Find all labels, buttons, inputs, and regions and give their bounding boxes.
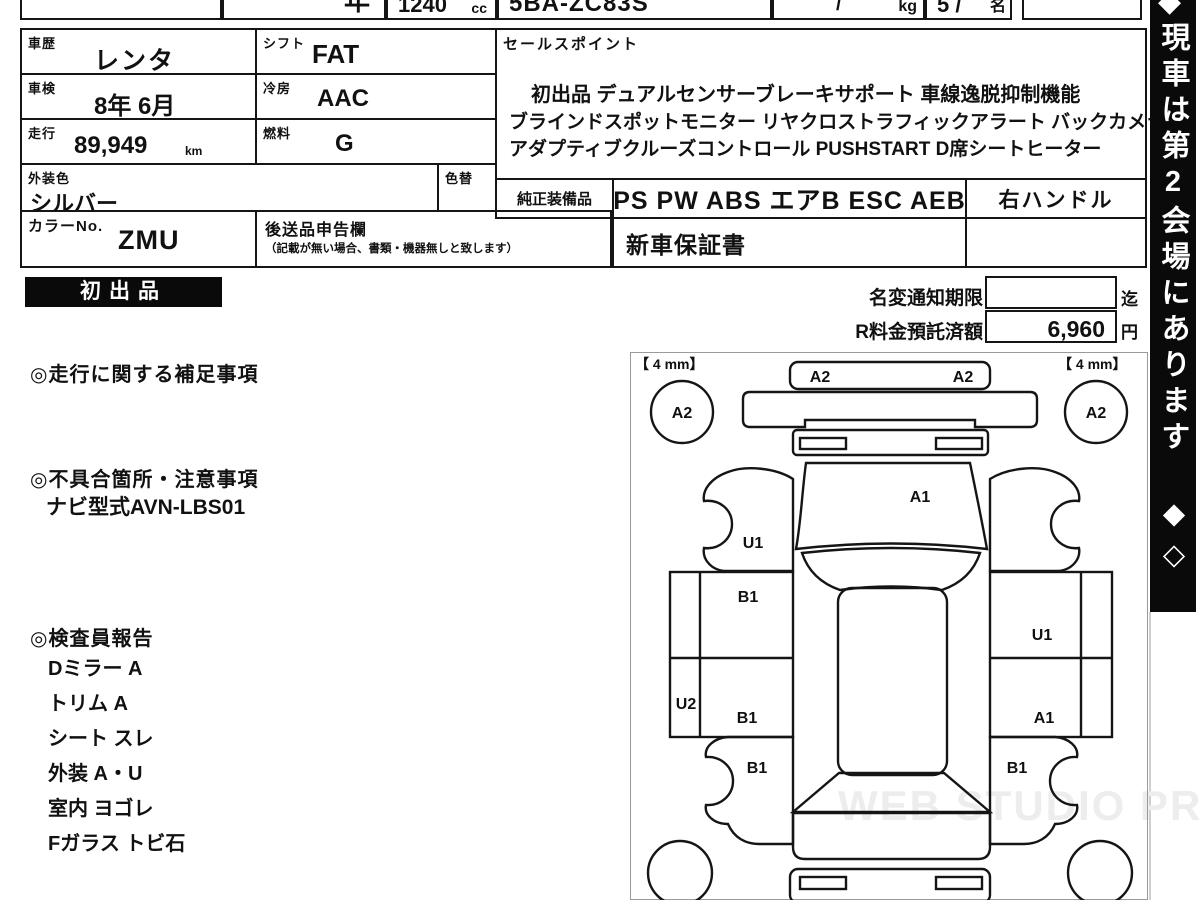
fuel-label: 燃料 [263, 123, 291, 142]
shift-value: FAT [312, 39, 359, 70]
weight-unit: kg [898, 0, 917, 16]
scan-edge-line [1149, 612, 1151, 900]
mark-front-bumper-left: A2 [810, 369, 831, 386]
aircon-value: AAC [317, 85, 369, 113]
equipment-value-cell: PS PW ABS エアB ESC AEB [612, 178, 967, 219]
inspector-item: シート スレ [48, 722, 154, 751]
mark-wheel-front-left: A2 [672, 405, 693, 422]
later-items-label: 後送品申告欄 [265, 216, 367, 240]
trunk [793, 813, 990, 859]
exterior-color-label: 外装色 [28, 168, 70, 187]
name-change-label: 名変通知期限 [700, 283, 983, 310]
diagram-frame [631, 353, 1148, 900]
weight-cell: / kg [772, 0, 925, 20]
sales-point-label: セールスポイント [503, 33, 639, 54]
history-label: 車歴 [28, 33, 56, 52]
inspector-item: Fガラス トビ石 [48, 827, 185, 856]
inspection-value: 8年 6月 [94, 86, 175, 121]
sales-point-line3: アダプティブクルーズコントロール PUSHSTART D席シートヒーター [509, 134, 1101, 161]
inspector-item: 外装 A・U [48, 757, 142, 786]
defect-item: ナビ型式AVN-LBS01 [46, 491, 245, 521]
inspector-item: Dミラー A [48, 652, 142, 681]
weight-slash: / [836, 0, 842, 16]
displacement-cell: 1240 cc [386, 0, 497, 20]
wheel-rear-right [1068, 841, 1132, 900]
year-fragment: 年 [344, 0, 370, 18]
mileage-unit: km [185, 144, 202, 158]
warranty-cell: 新車保証書 [612, 217, 967, 268]
front-bar [743, 392, 1037, 427]
mileage-cell: 走行 89,949 km [20, 118, 257, 165]
exterior-color-cell: 外装色 シルバー [20, 163, 439, 212]
color-no-label: カラーNo. [28, 215, 103, 236]
deposit-box: 6,960 [985, 310, 1117, 343]
fuel-value: G [335, 130, 354, 158]
headlight-left [800, 438, 846, 449]
top-right-empty-cell [1022, 0, 1142, 20]
venue-banner: ◆ 現車は第2会場にあります ◆◇ [1150, 0, 1196, 612]
front-fender-left [704, 468, 793, 571]
shift-label: シフト [263, 33, 305, 52]
model-code: 5BA-ZC83S [509, 0, 649, 18]
auction-sheet: 年 1240 cc 5BA-ZC83S / kg 5 / 名 車歴 レンタ シフ… [0, 0, 1200, 900]
capacity-value: 5 / [937, 0, 961, 18]
fuel-cell: 燃料 G [255, 118, 497, 165]
mark-left-box-top: B1 [738, 589, 759, 606]
color-no-value: ZMU [118, 225, 179, 256]
mark-left-box-bottom: B1 [737, 710, 758, 727]
inspector-item: トリム A [48, 687, 128, 716]
front-grille [793, 430, 988, 455]
quarter-panel-right [990, 737, 1077, 844]
sales-point-box: セールスポイント 初出品 デュアルセンサーブレーキサポート 車線逸脱抑制機能 ブ… [495, 28, 1147, 180]
inspection-label: 車検 [28, 78, 56, 97]
taillight-right [936, 877, 982, 889]
capacity-unit: 名 [990, 0, 1006, 16]
damage-diagram: 【 4 mm】 【 4 mm】 A2 A2 A2 A2 A1 U1 B1 U2 … [630, 352, 1148, 900]
mark-wheel-front-right: A2 [1086, 405, 1107, 422]
mark-sill-left: U2 [676, 696, 697, 713]
steering-cell: 右ハンドル [965, 178, 1147, 219]
displacement-value: 1240 [398, 0, 447, 18]
defect-title: ◎不具合箇所・注意事項 [30, 463, 258, 492]
mark-right-box-bottom: A1 [1034, 710, 1055, 727]
sales-point-line1: 初出品 デュアルセンサーブレーキサポート 車線逸脱抑制機能 [531, 78, 1080, 107]
mark-right-box-top: U1 [1032, 627, 1053, 644]
windshield [802, 548, 980, 590]
mileage-value: 89,949 [74, 132, 147, 160]
mileage-notes-title: ◎走行に関する補足事項 [30, 358, 258, 387]
mark-hood: A1 [910, 489, 931, 506]
history-cell: 車歴 レンタ [20, 28, 257, 75]
later-items-note: （記載が無い場合、書類・機器無しと致します） [265, 240, 518, 256]
front-fender-right [990, 468, 1079, 571]
top-empty-cell [20, 0, 222, 20]
name-change-box [985, 276, 1117, 309]
taillight-left [800, 877, 846, 889]
quarter-panel-left [706, 737, 793, 844]
deposit-value: 6,960 [1047, 316, 1105, 343]
wheel-rear-left [648, 841, 712, 900]
year-cell: 年 [222, 0, 386, 20]
mark-quarter-right: B1 [1007, 760, 1028, 777]
hood [796, 463, 987, 549]
model-code-cell: 5BA-ZC83S [497, 0, 772, 20]
warranty-value: 新車保証書 [614, 226, 746, 260]
first-listing-badge: 初出品 [25, 277, 222, 307]
venue-banner-text: 現車は第2会場にあります ◆◇ [1150, 22, 1196, 578]
aircon-label: 冷房 [263, 78, 291, 97]
color-no-cell: カラーNo. ZMU [20, 210, 257, 268]
mark-quarter-left: B1 [747, 760, 768, 777]
name-change-suffix: 迄 [1121, 285, 1138, 310]
color-change-cell: 色替 [437, 163, 497, 212]
inspection-cell: 車検 8年 6月 [20, 73, 257, 120]
inspector-item: 室内 ヨゴレ [48, 792, 154, 821]
deposit-unit: 円 [1121, 318, 1138, 343]
mileage-label: 走行 [28, 123, 56, 142]
inspector-title: ◎検査員報告 [30, 622, 153, 651]
steering-value: 右ハンドル [999, 184, 1114, 214]
rear-window [793, 773, 990, 812]
deposit-label: R料金預託済額 [700, 317, 983, 344]
equipment-value: PS PW ABS エアB ESC AEB [613, 181, 966, 217]
shift-cell: シフト FAT [255, 28, 497, 75]
capacity-cell: 5 / 名 [925, 0, 1012, 20]
roof [838, 588, 947, 775]
diamond-icon: ◆ [1158, 0, 1181, 19]
headlight-right [936, 438, 982, 449]
equipment-label: 純正装備品 [517, 188, 592, 209]
displacement-unit: cc [471, 0, 487, 16]
aircon-cell: 冷房 AAC [255, 73, 497, 120]
mark-front-bumper-right: A2 [953, 369, 974, 386]
color-change-label: 色替 [445, 168, 473, 187]
sales-point-line2: ブラインドスポットモニター リヤクロストラフィックアラート バックカメラ [509, 107, 1165, 134]
rear-bumper [790, 869, 990, 900]
tire-depth-front-right: 【 4 mm】 [1058, 356, 1126, 372]
tire-depth-front-left: 【 4 mm】 [635, 356, 703, 372]
history-value: レンタ [94, 41, 175, 77]
equipment-label-cell: 純正装備品 [495, 178, 614, 219]
mark-front-fender-left: U1 [743, 535, 764, 552]
warranty-right-empty-cell [965, 217, 1147, 268]
